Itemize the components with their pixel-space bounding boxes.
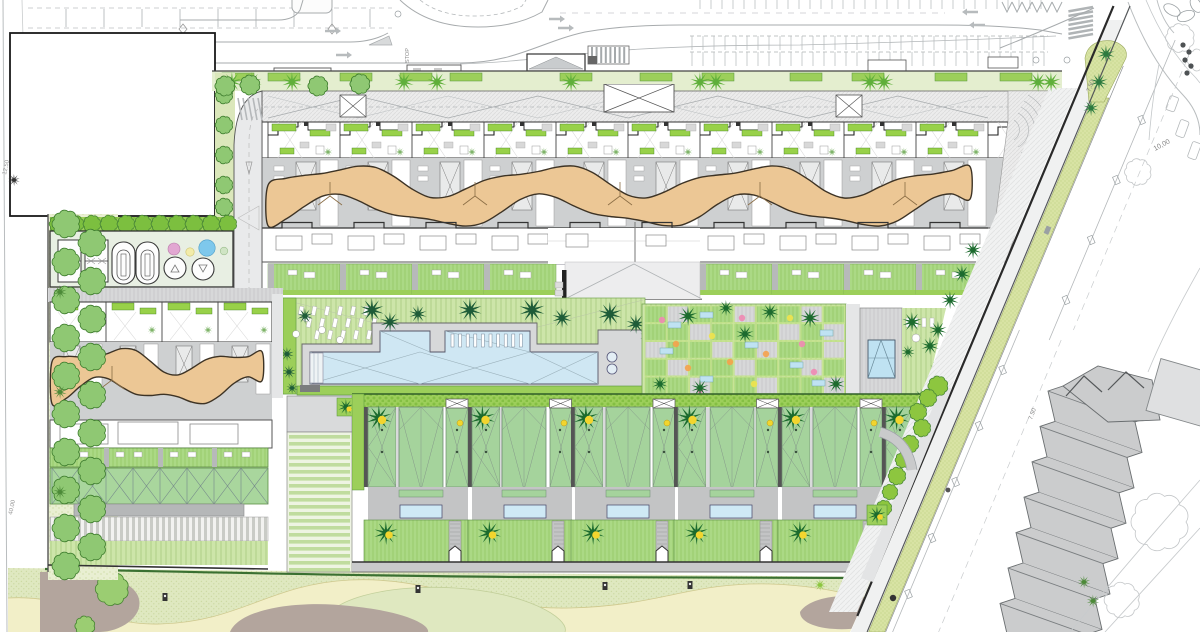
svg-text:STOP: STOP xyxy=(405,48,411,63)
